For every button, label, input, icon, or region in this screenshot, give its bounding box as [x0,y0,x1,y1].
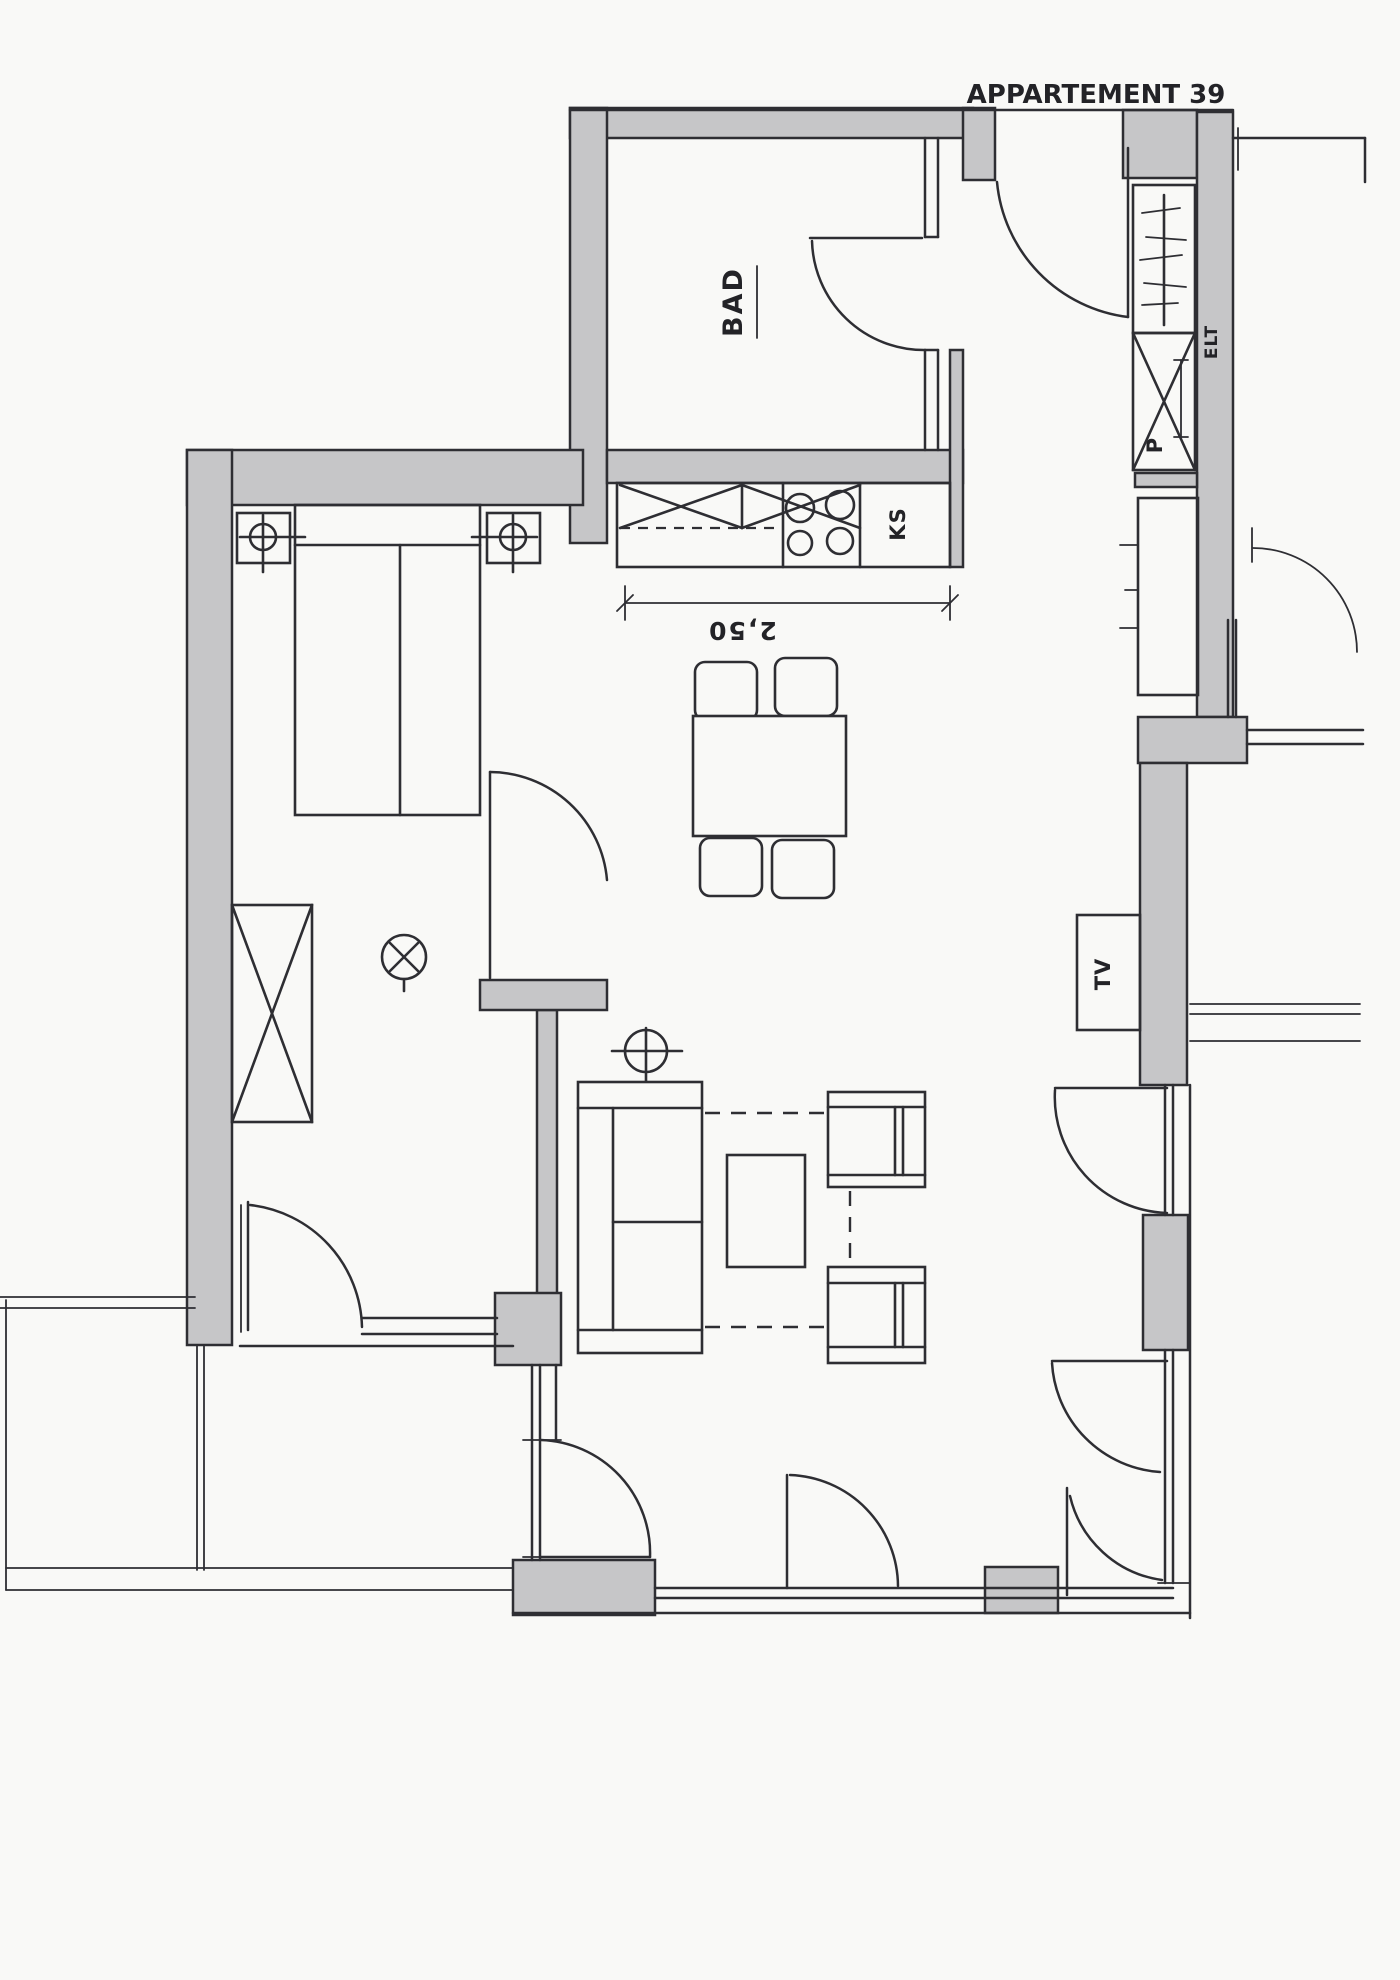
fridge-label: KS [886,507,910,540]
wall-left-outer [187,450,232,1345]
dining-chair [700,838,762,896]
living-room-furniture: TV [578,915,1140,1363]
double-bed [295,505,480,815]
wall-corridor-stub [480,980,607,1010]
wall-hall-stub [950,350,963,567]
floor-plan-page: KS 2,50 [0,0,1400,1980]
hall-sideboard [1120,498,1198,695]
balcony-door-east-1 [1055,1088,1167,1213]
living-balcony-door-south [787,1475,898,1588]
coffee-table [727,1155,805,1267]
bedroom-door [490,772,607,978]
wall-right-jog [1138,717,1247,763]
armchair-bottom [828,1267,925,1363]
living-terrace-door [541,1440,650,1557]
wall-bottom-right-block [985,1567,1058,1613]
bedroom-ceiling-lamp [382,935,426,991]
coat-rack [1133,185,1195,333]
dining-chair [772,840,834,898]
wall-entry-frame-left [963,108,995,180]
walls [187,108,1247,1615]
dining-set [693,658,846,898]
bedroom-terrace-door [241,1202,362,1332]
wall-entry-frame-right [1123,110,1197,178]
wall-bedroom-top [187,450,583,505]
nightstand-right [472,513,540,572]
doors [241,148,1167,1595]
wall-ledge [1135,473,1197,487]
living-ceiling-lamp [612,1028,682,1081]
armchair-top [828,1092,925,1187]
tv-cabinet: TV [1077,915,1140,1030]
bedroom-furniture [232,505,540,1122]
wall-kitchen-top [607,450,963,483]
pantry-closet: P [1133,333,1195,470]
kitchen-dimension: 2,50 [617,586,958,645]
bathroom-door [810,238,925,350]
dining-chair [695,662,757,720]
dining-chair [775,658,837,716]
plan-title: APPARTEMENT 39 [967,80,1226,110]
floor-plan-drawing: KS 2,50 [0,0,1400,1980]
wall-bath-top [570,108,973,138]
kitchen: KS 2,50 [617,483,958,645]
kitchen-dimension-label: 2,50 [707,616,777,645]
wall-bottom-left-block [513,1560,655,1615]
entrance-door [997,148,1128,317]
bathroom-label: BAD [718,267,749,337]
pantry-label: P [1143,437,1167,453]
hallway-furniture: P [1120,185,1198,695]
dining-table [693,716,846,836]
wall-right-lower [1140,763,1187,1085]
balcony-door-east-2 [1052,1361,1167,1595]
wall-balcony-pier [1143,1215,1188,1350]
kitchen-cabinet-x-symbols [620,485,860,528]
bathroom-label-group: BAD [718,266,757,338]
sofa [578,1082,702,1353]
electrical-label: ELT [1202,325,1222,359]
neighbour-door-arc [1253,548,1357,652]
wall-terrace-block [495,1293,561,1365]
tv-label: TV [1091,958,1115,991]
bedroom-wardrobe [232,905,312,1122]
